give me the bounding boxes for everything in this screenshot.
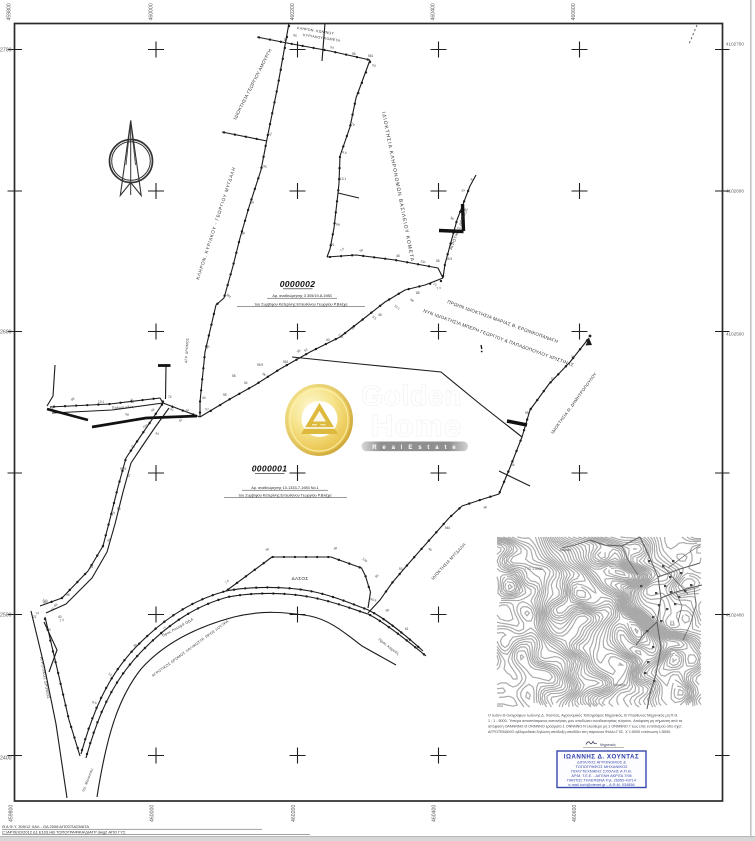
svg-text:4102700: 4102700 [726,42,744,47]
svg-text:13.1: 13.1 [340,177,346,181]
svg-text:απόφαση ΟΑΝΝΝΝΟ Θ ΟΝΝΝΝΟ εράσ: απόφαση ΟΑΝΝΝΝΟ Θ ΟΝΝΝΝΟ εράσματα 1 ΟΝΝΝ… [488,725,683,729]
svg-text:460000: 460000 [150,805,156,822]
svg-text:2600: 2600 [0,330,12,336]
svg-text:460200: 460200 [290,3,296,20]
svg-text:C:\ΑΡΧΕΙΟ\2012 Δ1 Ε103.ΗΒ ΤΟΠΟ: C:\ΑΡΧΕΙΟ\2012 Δ1 Ε103.ΗΒ ΤΟΠΟΓΡΑΦΙΚΑ\ΔΙ… [2,830,126,835]
svg-text:2400: 2400 [0,756,12,762]
svg-text:56: 56 [436,259,440,263]
svg-text:58: 58 [232,374,236,378]
svg-text:460600: 460600 [571,3,577,20]
svg-text:4102600: 4102600 [726,189,744,194]
svg-text:54: 54 [244,381,248,385]
svg-text:R e a l E s t a t e: R e a l E s t a t e [372,445,458,451]
svg-text:ΑΓΡΟΤΕΜΑΧΙΟ εβδομαδιαία δηλώ: ΑΓΡΟΤΕΜΑΧΙΟ εβδομαδιαία δηλώση απόδειξη … [488,730,671,734]
svg-text:21: 21 [33,615,37,619]
svg-text:ΓΥΣ 1:5000: ΓΥΣ 1:5000 [525,567,543,571]
svg-text:561: 561 [283,360,289,364]
svg-text:54: 54 [511,463,515,467]
svg-text:0000001: 0000001 [252,464,288,474]
svg-text:53: 53 [399,567,403,571]
svg-text:του Συμβ/φου Κατερίνης Επευθύ: του Συμβ/φου Κατερίνης Επευθύνου Γεωργίο… [255,303,349,307]
svg-text:460400: 460400 [431,3,437,20]
svg-text:95: 95 [117,507,121,511]
svg-text:95.9: 95.9 [257,363,263,367]
svg-text:Θ Α Φ.Υ. 309/12 ΧΑΛ - ΟΔ 2008: Θ Α Φ.Υ. 309/12 ΧΑΛ - ΟΔ 2008 ΑΠΟΣΠΑΣΜΑΤ… [2,824,89,829]
svg-text:96: 96 [66,593,70,597]
svg-text:459800: 459800 [9,805,15,822]
svg-text:74: 74 [168,395,172,399]
svg-text:Ο Ιωάνν.Θ αναγράφων Ιωάννης: Ο Ιωάνν.Θ αναγράφων Ιωάννης Δ. Χούντας, … [488,714,678,718]
svg-text:95.9: 95.9 [120,467,126,471]
svg-text:Αρ. αναθεώρησης 10-1333-7-1983: Αρ. αναθεώρησης 10-1333-7-1983 Νο.1 [251,486,319,490]
svg-text:88: 88 [416,291,420,295]
svg-text:95: 95 [525,411,529,415]
svg-text:2700: 2700 [0,48,12,54]
svg-text:48: 48 [378,313,382,317]
svg-text:95.9: 95.9 [446,257,452,261]
svg-text:95: 95 [223,393,227,397]
svg-text:2500: 2500 [0,613,12,619]
svg-text:40: 40 [202,396,206,400]
svg-text:21: 21 [331,243,335,247]
svg-text:ΔΑΣΟΣ: ΔΑΣΟΣ [292,576,309,581]
svg-text:του Συμβ/φου Κατερίνης Επευθύ: του Συμβ/φου Κατερίνης Επευθύνου Γεωργίο… [239,494,333,498]
svg-text:96: 96 [352,52,356,56]
svg-text:0000002: 0000002 [280,279,316,289]
svg-text:13.1: 13.1 [98,400,104,404]
svg-text:ΠΑΝΤΩΣ ΤΗΛΕΦΩΝΑ Τηλ. 26950-437: ΠΑΝΤΩΣ ΤΗΛΕΦΩΝΑ Τηλ. 26950-43714 [567,779,636,783]
svg-text:34: 34 [571,355,575,359]
svg-text:Home: Home [371,408,463,444]
svg-text:e-mail ioch@otenet.gr - Α.Φ.: e-mail ioch@otenet.gr - Α.Φ.Μ. 034856 [568,783,634,787]
svg-text:460000: 460000 [149,3,155,20]
svg-text:460200: 460200 [291,805,297,822]
svg-text:460600: 460600 [572,805,578,822]
svg-text:57: 57 [284,38,288,42]
svg-text:Καρυές: Καρυές [560,548,571,552]
svg-text:Αρ. αναθεώρησης 3 305/19-8-198: Αρ. αναθεώρησης 3 305/19-8-1983 [272,294,331,298]
svg-text:4102500: 4102500 [726,332,744,337]
svg-text:459800: 459800 [7,3,13,20]
svg-text:40: 40 [326,338,330,342]
svg-text:48: 48 [396,254,400,258]
svg-text:561: 561 [368,54,374,58]
svg-text:57: 57 [127,474,131,478]
svg-text:ΠΟΛΥΤΕΧΝΙΚΗΣ ΣΧΟΛΗΣ Α.Π.Θ.: ΠΟΛΥΤΕΧΝΙΚΗΣ ΣΧΟΛΗΣ Α.Π.Θ. [571,769,632,774]
svg-text:Μηχανικός: Μηχανικός [600,743,616,747]
svg-text:ΑΡ.Μ. Τ.Ε.Ε. - ΔΙΓΕΝΗ ΑΚΡΙΤΑ 7: ΑΡ.Μ. Τ.Ε.Ε. - ΔΙΓΕΝΗ ΑΚΡΙΤΑ 7/98 [571,774,631,778]
svg-text:561: 561 [445,526,451,530]
svg-text:1 : 1 - 5000. Ύστερα αποσπάσ: 1 : 1 - 5000. Ύστερα αποσπάσματος εκπονή… [488,719,683,723]
svg-text:61: 61 [405,627,409,631]
svg-text:57: 57 [551,377,555,381]
svg-text:Λουτρά: Λουτρά [614,683,625,687]
svg-text:460400: 460400 [432,805,438,822]
svg-text:4102400: 4102400 [726,613,744,618]
